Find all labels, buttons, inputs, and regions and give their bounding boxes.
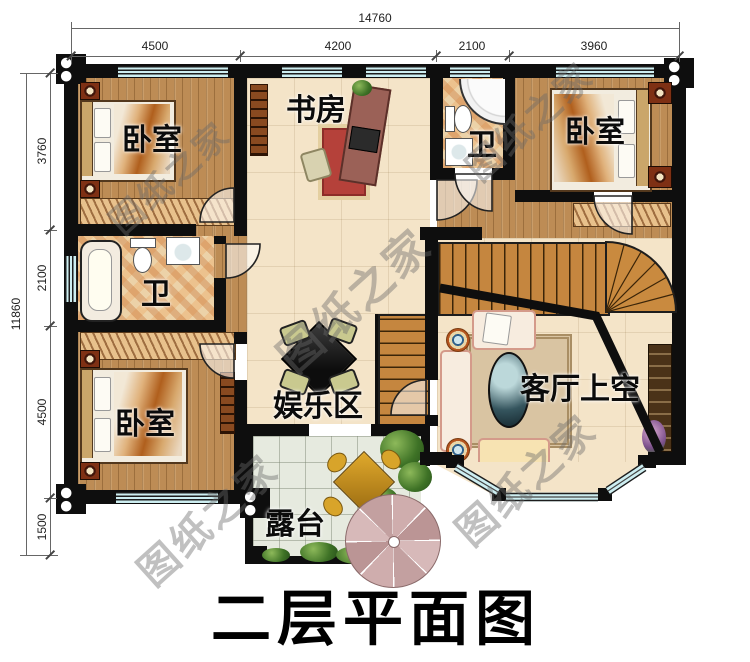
entertainment-label: 娱乐区 xyxy=(273,381,363,425)
dim-left-total-line xyxy=(26,73,27,555)
plan-title: 二层平面图 xyxy=(211,571,541,658)
dim-top-total-line xyxy=(71,28,679,29)
dim-left-seg-label-4: 1500 xyxy=(35,512,49,543)
dim-top-seg-label-4: 3960 xyxy=(579,39,610,53)
dim-top-total-label: 14760 xyxy=(356,11,393,25)
dim-left-seg-label-2: 2100 xyxy=(35,263,49,294)
door-bath-left xyxy=(226,244,260,278)
bath-left-label: 卫 xyxy=(141,269,171,313)
dim-left-seg-label-3: 4500 xyxy=(35,397,49,428)
dim-left-seg-label-1: 3760 xyxy=(35,136,49,167)
bedroom-top-right-label: 卧室 xyxy=(565,107,625,151)
door-bedroom2 xyxy=(594,196,632,234)
door-stairs xyxy=(391,380,426,415)
study-label: 书房 xyxy=(286,85,346,129)
plan-overlay xyxy=(0,0,750,662)
dim-left-tick-5 xyxy=(20,555,58,556)
bedroom-bottom-left-label: 卧室 xyxy=(115,399,175,443)
dim-left-total-label: 11860 xyxy=(9,296,23,332)
floor-plan-canvas: 卧室 书房 卫 卧室 卫 卧室 娱乐区 客厅上空 露台 图纸之家 图纸之家 图纸… xyxy=(0,0,750,662)
dim-top-seg-label-1: 4500 xyxy=(140,39,171,53)
dim-top-seg-label-3: 2100 xyxy=(457,39,488,53)
terrace-label: 露台 xyxy=(265,499,325,543)
door-bedroom1 xyxy=(200,188,234,222)
dim-left-tick-1 xyxy=(20,73,58,74)
dim-top-seg-label-2: 4200 xyxy=(323,39,354,53)
living-void-label: 客厅上空 xyxy=(520,364,640,408)
dim-top-seg-line xyxy=(71,56,679,57)
dim-left-seg-line xyxy=(50,73,51,555)
door-bedroom3 xyxy=(200,344,234,378)
